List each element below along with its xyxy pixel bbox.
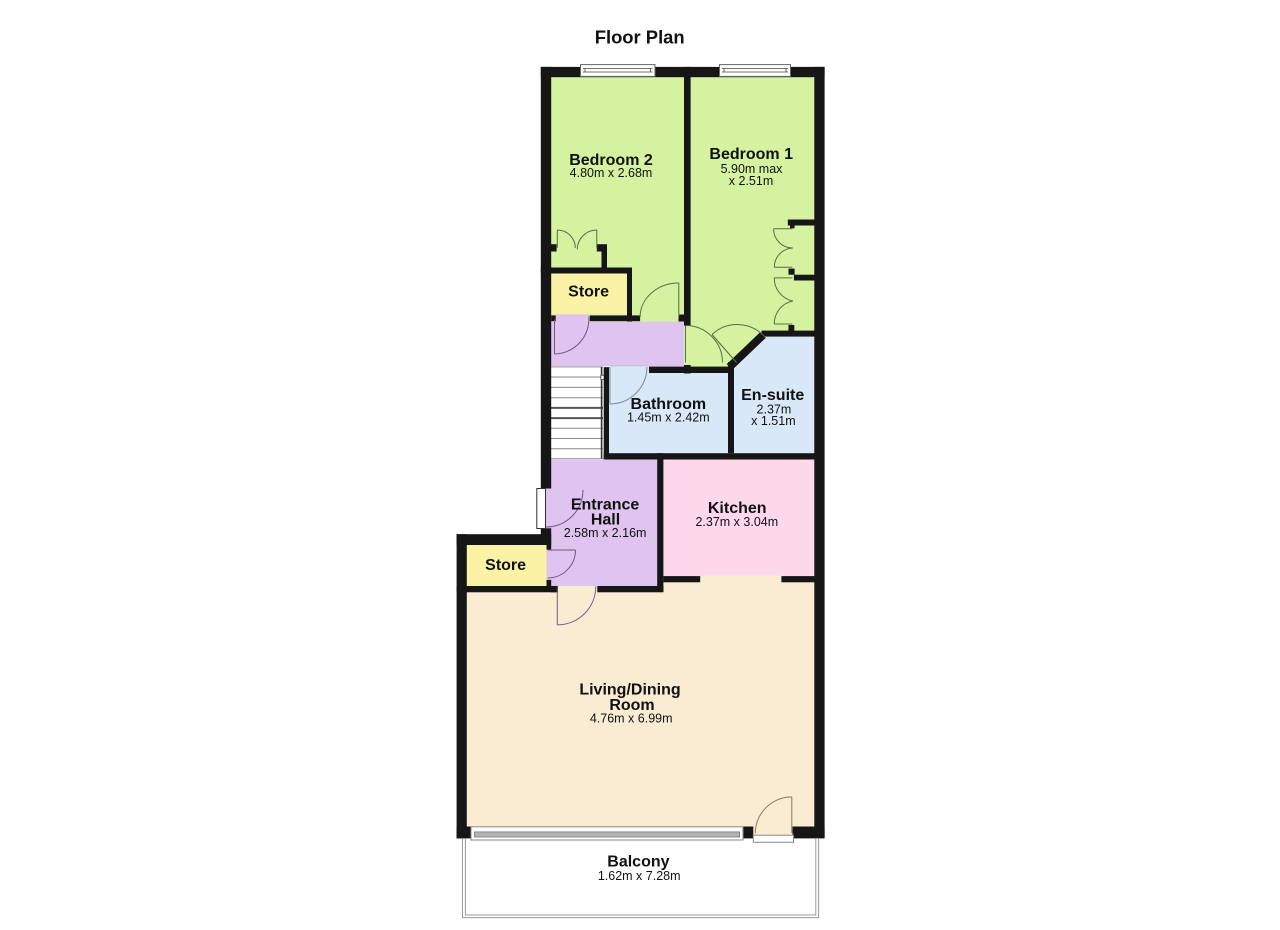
svg-text:2.58m x 2.16m: 2.58m x 2.16m <box>564 526 647 540</box>
svg-text:x 1.51m: x 1.51m <box>751 414 795 428</box>
svg-text:Store: Store <box>568 283 609 300</box>
svg-text:4.76m x 6.99m: 4.76m x 6.99m <box>590 711 673 725</box>
svg-text:Balcony: Balcony <box>607 854 669 871</box>
svg-text:Bedroom 1: Bedroom 1 <box>709 146 793 163</box>
svg-text:x 2.51m: x 2.51m <box>729 174 773 188</box>
svg-text:En-suite: En-suite <box>741 387 804 404</box>
svg-text:4.80m x 2.68m: 4.80m x 2.68m <box>570 166 653 180</box>
svg-text:Floor Plan: Floor Plan <box>595 27 685 48</box>
svg-text:1.62m x 7.28m: 1.62m x 7.28m <box>598 869 681 883</box>
svg-text:Store: Store <box>485 557 526 574</box>
svg-text:1.45m x 2.42m: 1.45m x 2.42m <box>627 410 710 424</box>
svg-text:Living/Dining: Living/Dining <box>579 681 680 698</box>
svg-text:2.37m x 3.04m: 2.37m x 3.04m <box>695 515 778 529</box>
